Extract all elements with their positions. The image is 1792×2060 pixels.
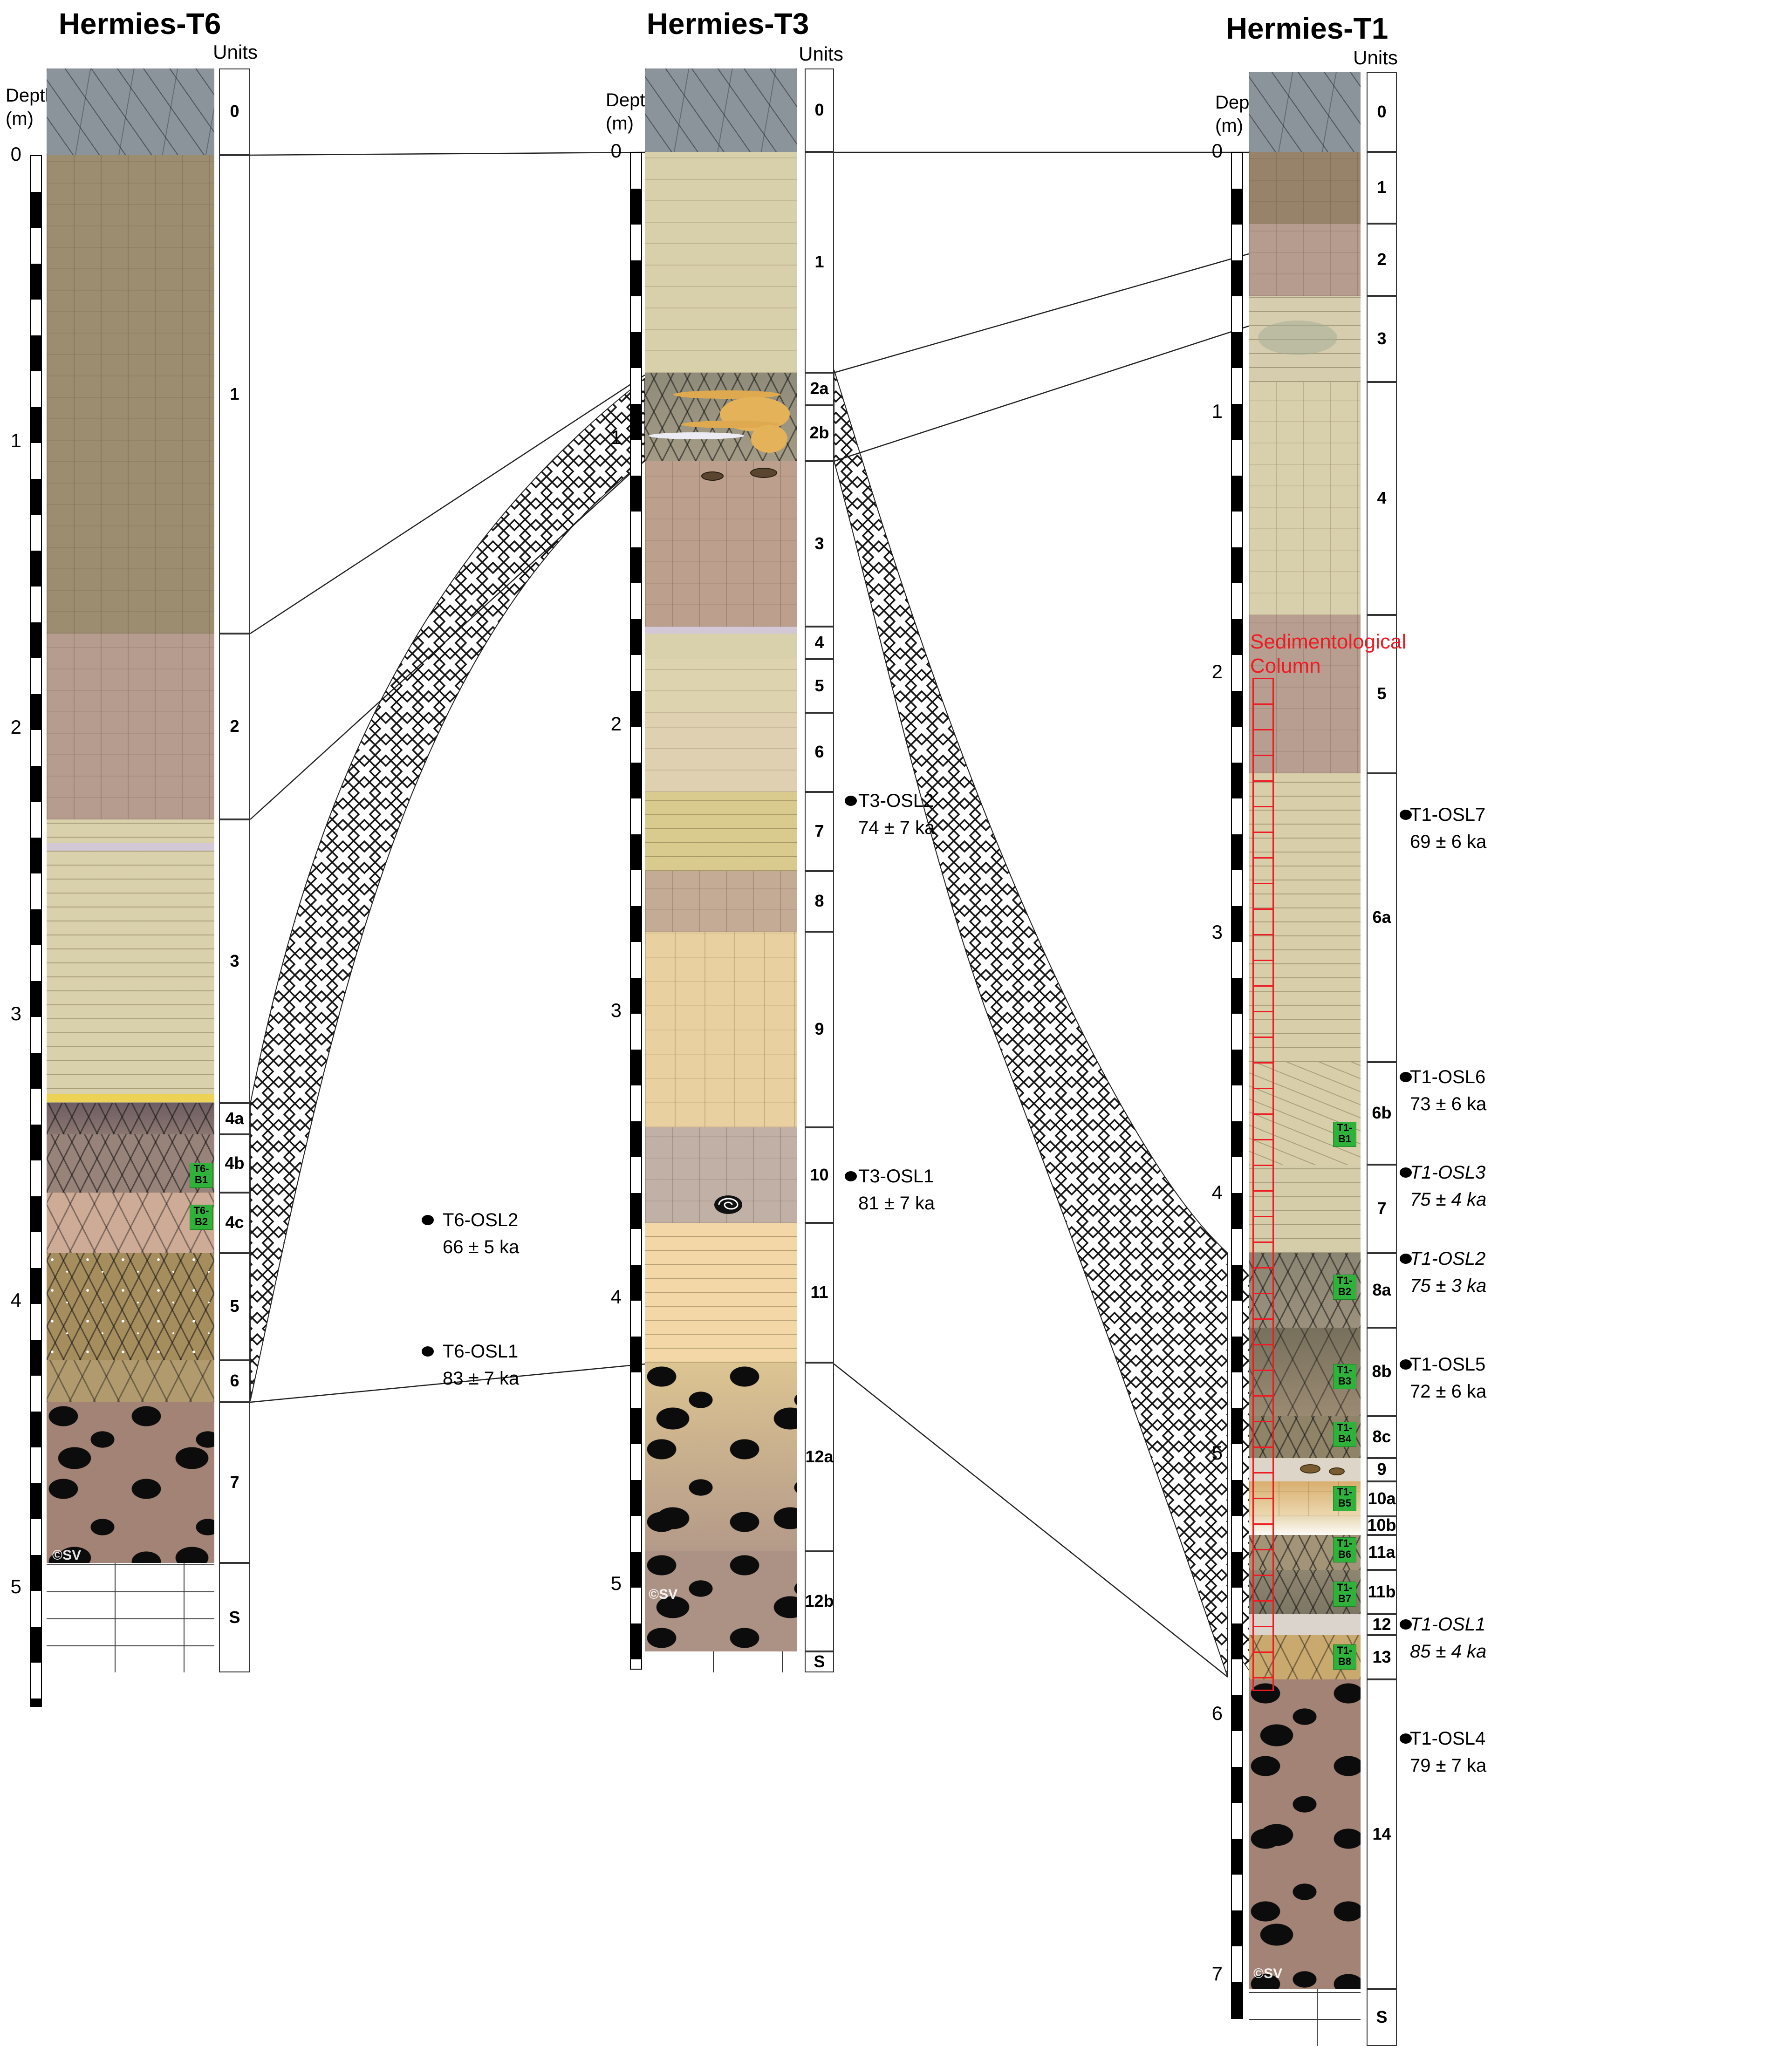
block-sample-line2: B8 [1334, 1656, 1356, 1667]
block-sample-label: T1-B1 [1333, 1122, 1356, 1147]
osl-sample-age: 69 ± 6 ka [1410, 828, 1486, 855]
unit-label: 10 [805, 1165, 834, 1185]
block-sample-label: T1-B5 [1333, 1486, 1356, 1511]
layer-texture [47, 1402, 214, 1563]
greenish-tint-patch [1258, 321, 1337, 355]
strat-layer [47, 819, 214, 1103]
block-sample-line2: B7 [1334, 1593, 1356, 1604]
osl-sample-name: T3-OSL2 [858, 787, 935, 814]
osl-sample-age: 66 ± 5 ka [443, 1234, 519, 1261]
layer-texture [1249, 1679, 1361, 1989]
strat-layer [47, 634, 214, 819]
units-header: Units [213, 41, 258, 63]
strat-layer [47, 155, 214, 634]
depth-mark: 5 [1190, 1442, 1223, 1464]
strat-layer [1249, 72, 1361, 152]
block-sample-line2: B2 [190, 1216, 212, 1228]
block-sample-line1: T1- [1334, 1275, 1356, 1286]
unit-label: 7 [219, 1473, 250, 1492]
osl-sample-name: T1-OSL7 [1410, 801, 1486, 828]
strat-column [47, 0, 214, 2060]
layer-texture [645, 68, 797, 152]
depth-mark: 5 [589, 1572, 622, 1595]
unit-label: 11b [1367, 1582, 1397, 1602]
layer-texture [1249, 1989, 1361, 2046]
unit-label: 3 [1367, 329, 1397, 348]
block-sample-line1: T1- [1334, 1538, 1356, 1549]
unit-label: 4c [219, 1213, 250, 1232]
unit-label: 5 [219, 1296, 250, 1316]
unit-label: S [219, 1608, 250, 1627]
strat-layer [645, 627, 797, 634]
unit-label: 10b [1367, 1515, 1397, 1535]
depth-scalebar [1231, 152, 1243, 2019]
unit-label: 7 [805, 821, 834, 841]
pebble [701, 471, 724, 481]
unit-label: 3 [805, 534, 834, 553]
depth-mark: 4 [589, 1286, 622, 1308]
unit-label: 4 [805, 633, 834, 652]
unit-label: 4b [219, 1153, 250, 1173]
layer-texture [645, 1223, 797, 1363]
osl-sample-name: T1-OSL3 [1410, 1159, 1486, 1186]
strat-layer [47, 1103, 214, 1134]
unit-label: 12a [805, 1447, 834, 1467]
layer-texture [47, 155, 214, 634]
layer-texture [1249, 382, 1361, 615]
osl-sample-name: T1-OSL5 [1410, 1351, 1486, 1378]
osl-sample-label: T1-OSL572 ± 6 ka [1410, 1351, 1486, 1405]
block-sample-line1: T1- [1334, 1364, 1356, 1376]
osl-sample-label: T1-OSL185 ± 4 ka [1410, 1611, 1486, 1665]
unit-label: 11 [805, 1282, 834, 1302]
osl-sample-name: T3-OSL1 [858, 1163, 935, 1190]
block-sample-label: T6-B2 [190, 1205, 213, 1230]
osl-sample-dot [845, 796, 857, 806]
strat-layer [1249, 224, 1361, 296]
layer-texture [47, 1563, 214, 1672]
unit-label: 13 [1367, 1647, 1397, 1667]
layer-texture [47, 819, 214, 1103]
unit-label: 9 [1367, 1460, 1397, 1479]
correlation-band-t3-t1 [834, 370, 1228, 1677]
depth-mark: 3 [0, 1003, 21, 1025]
strat-layer [47, 1094, 214, 1102]
osl-sample-dot [422, 1215, 434, 1225]
unit-label: 1 [1367, 177, 1397, 197]
stratigraphic-figure: Hermies-T6UnitsDepth(m)01234501234a4b4c5… [0, 0, 1792, 2060]
layer-texture [47, 1103, 214, 1134]
depth-mark: 2 [589, 713, 622, 735]
unit-label: 4a [219, 1109, 250, 1128]
strat-layer [47, 1134, 214, 1193]
pebble [750, 468, 777, 478]
osl-sample-label: T3-OSL181 ± 7 ka [858, 1163, 935, 1217]
depth-mark: 3 [1190, 921, 1223, 943]
unit-label: 10a [1367, 1489, 1397, 1508]
strat-layer [645, 713, 797, 792]
osl-sample-age: 73 ± 6 ka [1410, 1091, 1486, 1118]
strat-layer [1249, 152, 1361, 224]
correlation-overlay [0, 0, 1792, 2060]
strat-layer [645, 1223, 797, 1363]
block-sample-line2: B1 [190, 1174, 212, 1186]
block-sample-line1: T1- [1334, 1645, 1356, 1656]
copyright-watermark: ©SV [649, 1587, 677, 1603]
unit-label: 2 [1367, 250, 1397, 269]
osl-sample-age: 75 ± 4 ka [1410, 1186, 1486, 1213]
osl-sample-name: T1-OSL2 [1410, 1245, 1486, 1272]
strat-layer [645, 1651, 797, 1672]
depth-scalebar [630, 152, 642, 1670]
osl-sample-age: 85 ± 4 ka [1410, 1638, 1486, 1665]
osl-sample-age: 75 ± 3 ka [1410, 1272, 1486, 1299]
strat-layer [645, 659, 797, 713]
block-sample-line2: B2 [1334, 1286, 1356, 1297]
strat-layer [645, 152, 797, 373]
osl-sample-name: T1-OSL6 [1410, 1064, 1486, 1091]
layer-texture [645, 932, 797, 1127]
layer-texture [645, 461, 797, 627]
sedimentological-note-line2: Column [1250, 654, 1406, 678]
block-sample-line2: B1 [1334, 1133, 1356, 1145]
osl-sample-label: T6-OSL266 ± 5 ka [443, 1207, 519, 1261]
block-sample-line1: T1- [1334, 1422, 1356, 1433]
block-sample-label: T1-B3 [1333, 1364, 1356, 1389]
unit-label: 6b [1367, 1103, 1397, 1123]
strat-layer [47, 1253, 214, 1360]
unit-label: 2b [805, 423, 834, 443]
depth-mark: 1 [0, 430, 21, 452]
unit-label: 8c [1367, 1427, 1397, 1446]
block-sample-label: T1-B7 [1333, 1582, 1356, 1607]
strat-layer [645, 1363, 797, 1551]
depth-mark: 0 [0, 143, 21, 165]
unit-label: 7 [1367, 1199, 1397, 1218]
strat-layer [1249, 382, 1361, 615]
strat-layer [645, 932, 797, 1127]
copyright-watermark: ©SV [1253, 1966, 1282, 1982]
osl-sample-label: T1-OSL769 ± 6 ka [1410, 801, 1486, 855]
orange-sand-lens [751, 425, 787, 453]
osl-sample-label: T3-OSL274 ± 7 ka [858, 787, 935, 841]
layer-texture [1249, 72, 1361, 152]
sedimentological-column-note: SedimentologicalColumn [1250, 630, 1406, 678]
unit-label: 0 [219, 102, 250, 121]
osl-sample-label: T1-OSL673 ± 6 ka [1410, 1064, 1486, 1118]
block-sample-line2: B5 [1334, 1498, 1356, 1509]
unit-label: 5 [805, 676, 834, 696]
unit-label: S [1367, 2007, 1397, 2027]
unit-label: 3 [219, 951, 250, 971]
unit-label: 9 [805, 1019, 834, 1039]
unit-label: 2 [219, 716, 250, 736]
unit-label: 6a [1367, 907, 1397, 927]
strat-layer [1249, 1679, 1361, 1989]
pebble [1329, 1467, 1345, 1475]
block-sample-label: T1-B4 [1333, 1422, 1356, 1447]
layer-texture [645, 1363, 797, 1551]
unit-label: 8 [805, 891, 834, 911]
unit-label: 1 [219, 384, 250, 404]
depth-mark: 6 [1190, 1702, 1223, 1725]
block-sample-line1: T1- [1334, 1122, 1356, 1133]
unit-label: 12 [1367, 1615, 1397, 1634]
strat-layer [47, 1563, 214, 1672]
strat-layer [1249, 1989, 1361, 2046]
unit-label: 1 [805, 252, 834, 272]
strat-layer [645, 792, 797, 871]
strat-layer [47, 1360, 214, 1402]
unit-label: 8b [1367, 1362, 1397, 1381]
block-sample-line2: B3 [1334, 1376, 1356, 1387]
unit-label: 12b [805, 1591, 834, 1611]
strat-layer [47, 843, 214, 851]
block-sample-line1: T6- [190, 1205, 212, 1216]
osl-sample-name: T1-OSL1 [1410, 1611, 1486, 1638]
osl-sample-age: 81 ± 7 ka [858, 1190, 935, 1217]
block-sample-label: T6-B1 [190, 1163, 213, 1188]
strat-layer [645, 871, 797, 932]
unit-label: 5 [1367, 684, 1397, 703]
osl-sample-label: T1-OSL479 ± 7 ka [1410, 1725, 1486, 1779]
depth-mark: 2 [1190, 661, 1223, 683]
copyright-watermark: ©SV [52, 1548, 81, 1563]
depth-mark: 1 [1190, 400, 1223, 423]
unit-label: 8a [1367, 1280, 1397, 1300]
osl-sample-age: 83 ± 7 ka [443, 1365, 519, 1392]
block-sample-line2: B6 [1334, 1549, 1356, 1560]
sedimentological-note-line1: Sedimentological [1250, 630, 1406, 654]
pebble [1300, 1464, 1320, 1473]
depth-mark: 5 [0, 1576, 21, 1598]
snail-shell-icon [712, 1193, 745, 1217]
strat-layer [47, 1402, 214, 1563]
strat-layer [645, 68, 797, 152]
unit-label: 14 [1367, 1824, 1397, 1844]
block-sample-line1: T6- [190, 1163, 212, 1174]
osl-sample-label: T1-OSL375 ± 4 ka [1410, 1159, 1486, 1213]
unit-label: S [805, 1652, 834, 1671]
strat-layer [47, 1193, 214, 1253]
osl-sample-age: 74 ± 7 ka [858, 814, 935, 841]
layer-texture [47, 1360, 214, 1402]
osl-sample-age: 79 ± 7 ka [1410, 1752, 1486, 1779]
layer-texture [47, 1134, 214, 1193]
depth-mark: 4 [0, 1289, 21, 1311]
block-sample-label: T1-B8 [1333, 1644, 1356, 1670]
pale-silt-streak [649, 432, 744, 439]
osl-sample-age: 72 ± 6 ka [1410, 1378, 1486, 1405]
layer-texture [47, 1253, 214, 1360]
unit-label: 0 [805, 100, 834, 120]
layer-texture [1249, 224, 1361, 296]
sedimentological-column-overlay [1252, 678, 1274, 1691]
osl-sample-label: T6-OSL183 ± 7 ka [443, 1338, 519, 1392]
layer-texture [645, 1651, 797, 1672]
unit-label: 6 [805, 742, 834, 762]
osl-sample-name: T6-OSL1 [443, 1338, 519, 1365]
layer-texture [645, 152, 797, 373]
layer-texture [47, 1193, 214, 1253]
layer-texture [645, 713, 797, 792]
layer-texture [47, 634, 214, 819]
depth-mark: 7 [1190, 1963, 1223, 1985]
depth-mark: 2 [0, 716, 21, 738]
unit-label: 0 [1367, 102, 1397, 122]
depth-mark: 4 [1190, 1181, 1223, 1204]
osl-sample-dot [422, 1346, 434, 1357]
depth-mark: 0 [589, 140, 622, 162]
osl-sample-name: T6-OSL2 [443, 1207, 519, 1234]
block-sample-label: T1-B2 [1333, 1275, 1356, 1300]
block-sample-line1: T1- [1334, 1582, 1356, 1593]
layer-texture [1249, 152, 1361, 224]
units-header: Units [799, 43, 843, 65]
block-sample-label: T1-B6 [1333, 1537, 1356, 1562]
osl-sample-name: T1-OSL4 [1410, 1725, 1486, 1752]
layer-texture [645, 659, 797, 713]
osl-sample-label: T1-OSL275 ± 3 ka [1410, 1245, 1486, 1299]
layer-texture [645, 792, 797, 871]
block-sample-line1: T1- [1334, 1487, 1356, 1498]
depth-mark: 3 [589, 999, 622, 1022]
unit-label: 6 [219, 1371, 250, 1391]
osl-sample-dot [845, 1171, 857, 1181]
depth-mark: 0 [1190, 140, 1223, 162]
strat-column [645, 0, 797, 2060]
unit-label: 11a [1367, 1542, 1397, 1562]
depth-scalebar [30, 155, 42, 1707]
strat-layer [645, 461, 797, 627]
layer-texture [47, 68, 214, 155]
depth-mark: 1 [589, 426, 622, 449]
unit-label: 2a [805, 379, 834, 398]
block-sample-line2: B4 [1334, 1433, 1356, 1445]
layer-texture [645, 871, 797, 932]
unit-label: 4 [1367, 488, 1397, 508]
strat-layer [47, 68, 214, 155]
